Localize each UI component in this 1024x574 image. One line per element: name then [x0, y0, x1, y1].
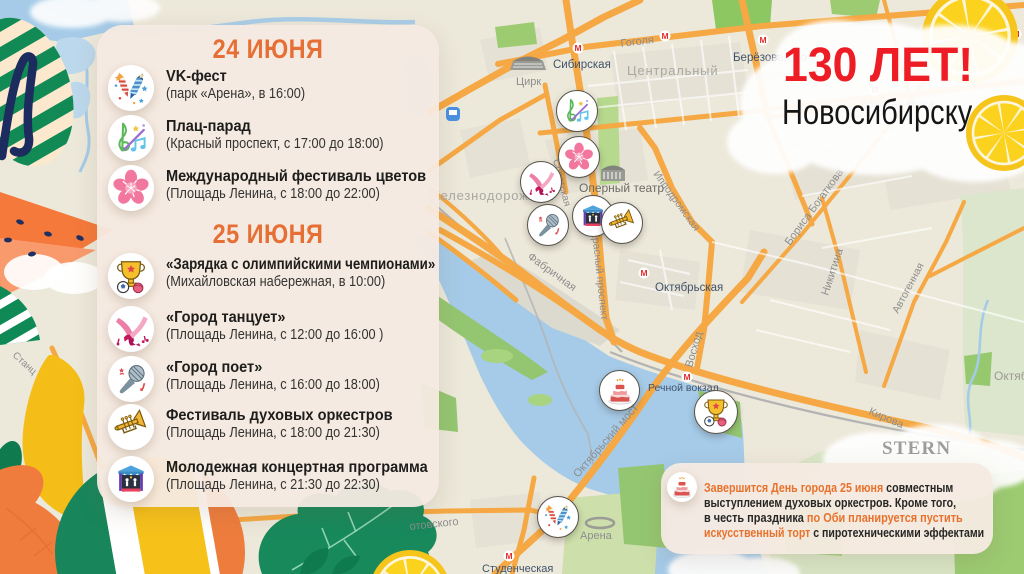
- svg-text:Цирк: Цирк: [516, 76, 541, 88]
- svg-text:Октябрь: Октябрь: [994, 369, 1024, 383]
- svg-text:М: М: [640, 268, 647, 278]
- svg-text:Арена: Арена: [580, 530, 613, 542]
- svg-text:М: М: [574, 43, 581, 53]
- svg-text:М: М: [661, 31, 668, 41]
- svg-text:Октябрьская: Октябрьская: [655, 282, 723, 294]
- svg-text:Центральный: Центральный: [627, 63, 718, 78]
- svg-text:М: М: [683, 372, 690, 382]
- svg-text:Сибирская: Сибирская: [553, 59, 611, 71]
- svg-text:Оперный театр: Оперный театр: [579, 181, 664, 195]
- svg-text:Студенческая: Студенческая: [482, 563, 553, 574]
- svg-text:М: М: [505, 551, 512, 561]
- svg-text:М: М: [759, 35, 766, 45]
